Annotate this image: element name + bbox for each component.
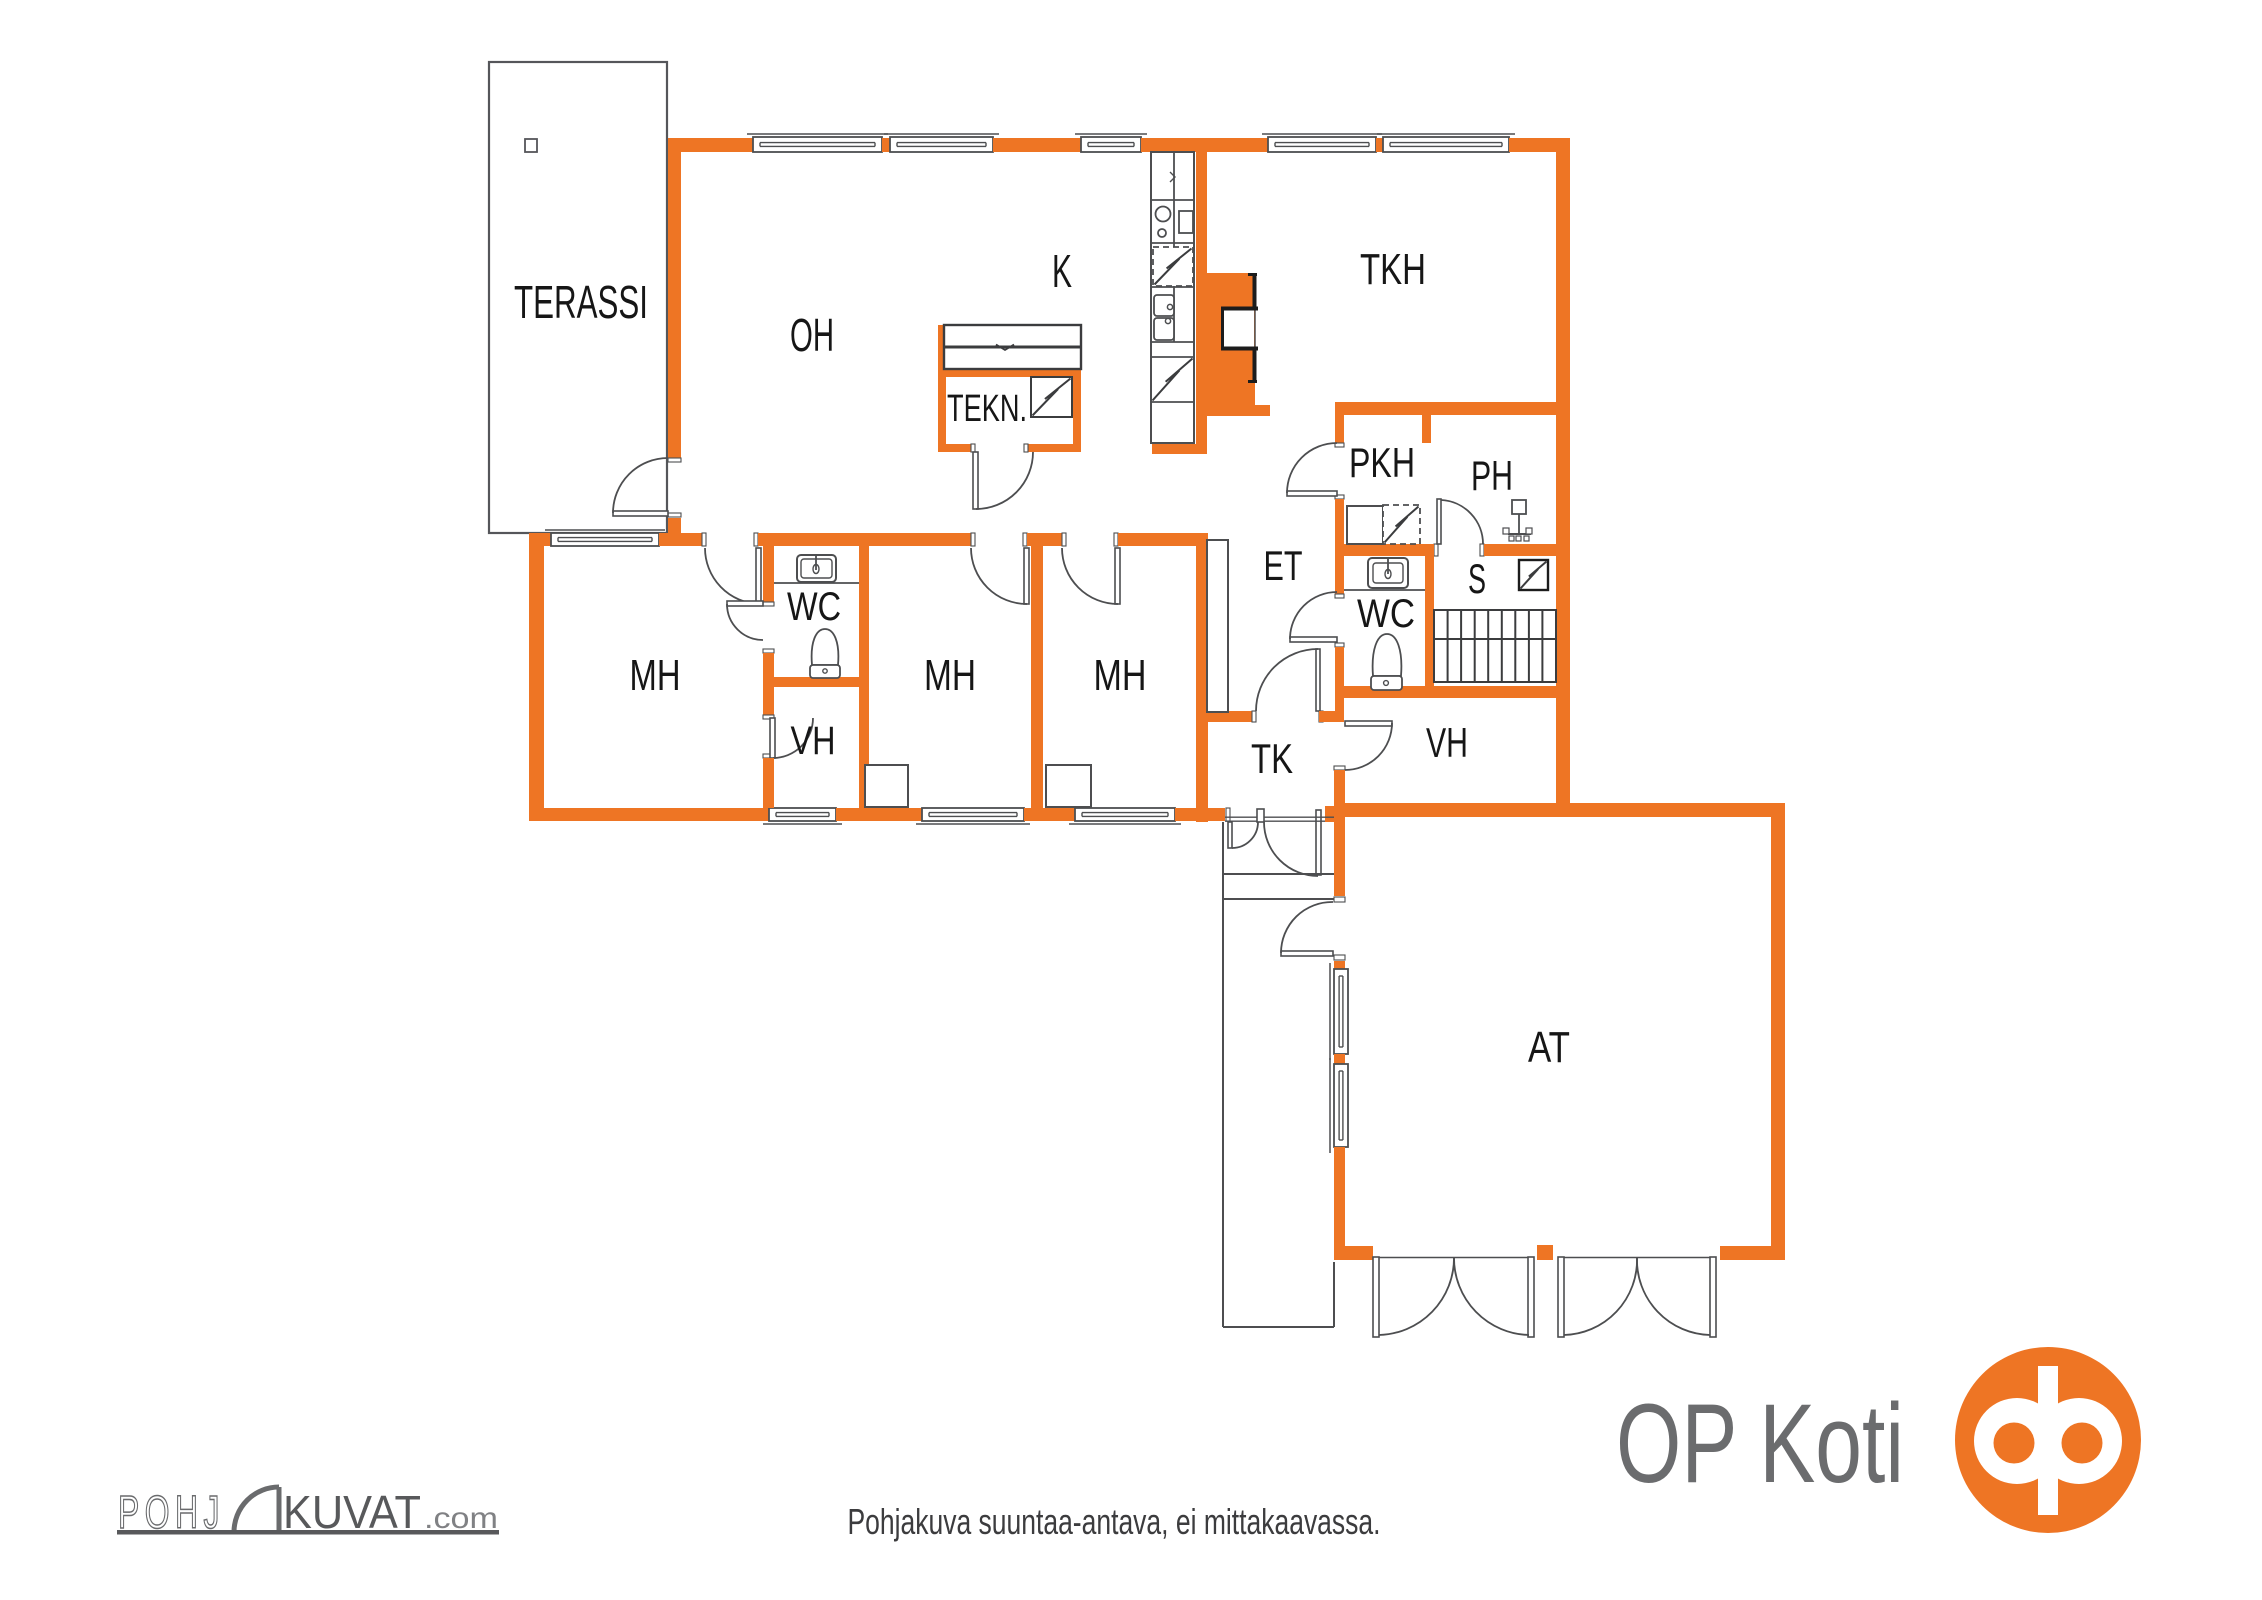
svg-text:TK: TK — [1251, 735, 1293, 782]
svg-text:PKH: PKH — [1349, 439, 1415, 486]
svg-text:VH: VH — [791, 719, 836, 763]
svg-text:VH: VH — [1426, 719, 1468, 766]
svg-text:OP Koti: OP Koti — [1616, 1381, 1904, 1506]
svg-text:MH: MH — [924, 651, 976, 700]
svg-text:K: K — [1052, 245, 1072, 297]
svg-text:S: S — [1468, 555, 1486, 602]
svg-text:AT: AT — [1528, 1023, 1570, 1072]
svg-text:WC: WC — [1357, 592, 1415, 636]
svg-text:Pohjakuva suuntaa-antava, ei m: Pohjakuva suuntaa-antava, ei mittakaavas… — [848, 1501, 1381, 1542]
svg-text:PH: PH — [1471, 452, 1513, 499]
svg-text:TERASSI: TERASSI — [514, 276, 648, 328]
svg-text:WC: WC — [787, 585, 841, 629]
svg-text:MH: MH — [1094, 651, 1147, 700]
svg-text:MH: MH — [630, 651, 681, 700]
svg-text:OH: OH — [790, 309, 834, 361]
svg-text:TKH: TKH — [1360, 245, 1426, 294]
svg-text:ET: ET — [1264, 542, 1303, 589]
svg-text:TEKN.: TEKN. — [947, 388, 1027, 430]
